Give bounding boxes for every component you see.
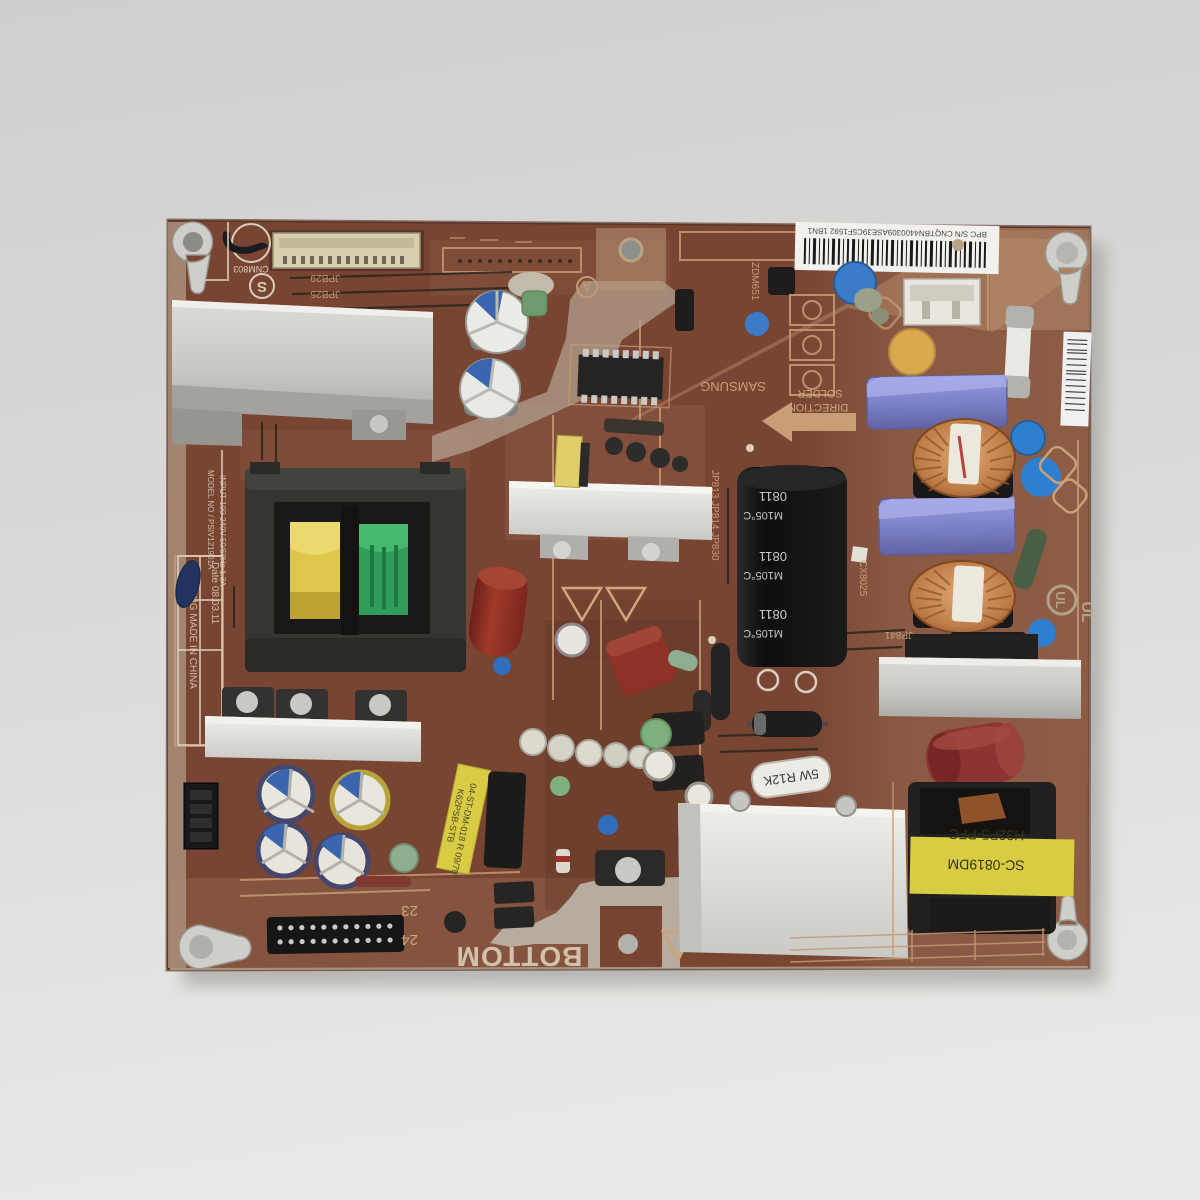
svg-text:0811: 0811	[759, 549, 787, 564]
svg-text:24: 24	[401, 931, 418, 948]
svg-text:A: A	[582, 279, 591, 294]
svg-text:JPB29: JPB29	[310, 272, 340, 283]
svg-text:CX8025: CX8025	[857, 560, 868, 597]
svg-text:0811: 0811	[759, 489, 787, 504]
svg-text:DIRECTION: DIRECTION	[788, 401, 849, 413]
svg-text:BOTTOM: BOTTOM	[456, 941, 583, 972]
svg-text:JP813 JP814 JP830: JP813 JP814 JP830	[709, 470, 720, 561]
svg-text:M105°C: M105°C	[743, 569, 783, 581]
svg-text:23: 23	[401, 902, 418, 919]
svg-text:SC-0819DM: SC-0819DM	[947, 856, 1024, 873]
svg-text:M105°C: M105°C	[743, 509, 783, 521]
svg-text:M105°C: M105°C	[743, 627, 783, 639]
svg-text:H32P5-PFC: H32P5-PFC	[949, 826, 1025, 843]
svg-text:JP841: JP841	[884, 629, 913, 640]
svg-text:ZDM651: ZDM651	[749, 262, 760, 301]
svg-text:SAMSUNG: SAMSUNG	[700, 379, 766, 394]
svg-text:SOLDER: SOLDER	[797, 387, 842, 399]
svg-text:S: S	[257, 278, 267, 295]
svg-text:Date 08.03.11: Date 08.03.11	[209, 562, 220, 625]
svg-text:UL: UL	[1053, 591, 1068, 608]
svg-text:CNM803: CNM803	[233, 264, 269, 274]
svg-text:0811: 0811	[759, 607, 787, 622]
svg-text:JPB25: JPB25	[310, 288, 340, 299]
svg-text:MODEL NO / PSIV121901A: MODEL NO / PSIV121901A	[206, 470, 215, 570]
svg-text:UL: UL	[1078, 601, 1095, 623]
